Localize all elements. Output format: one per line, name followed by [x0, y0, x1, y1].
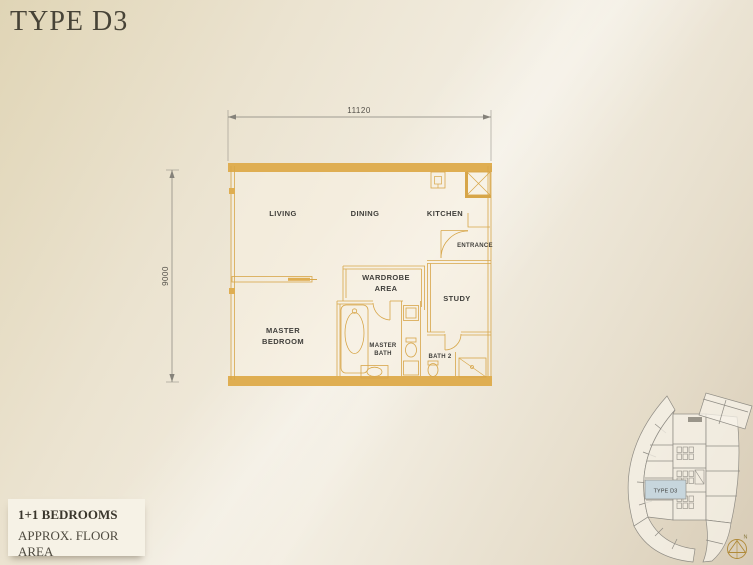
room-label-dining: DINING — [351, 209, 380, 218]
keyplan-bottom-right — [703, 520, 731, 562]
room-label-master-bedroom-2: BEDROOM — [262, 337, 304, 346]
compass-north-label: N — [744, 535, 748, 541]
room-label-bath2: BATH 2 — [428, 354, 451, 360]
compass-icon: N — [728, 535, 748, 559]
room-label-master-bath-1: MASTER — [369, 343, 396, 349]
dimension-height-label: 9000 — [161, 266, 170, 286]
room-label-entrance: ENTRANCE — [457, 243, 493, 249]
keyplan-right-units — [706, 414, 739, 523]
brochure-page: TYPE D3 11120 9000 — [0, 0, 753, 565]
floor-plan-graphic: 11120 9000 — [0, 0, 753, 565]
keyplan-unit-label: TYPE D3 — [654, 489, 678, 495]
room-label-study: STUDY — [443, 294, 470, 303]
info-card: 1+1 BEDROOMS APPROX. FLOOR AREA 1, 076 s… — [8, 499, 145, 556]
room-label-wardrobe-2: AREA — [375, 284, 398, 293]
floor-area-label: APPROX. FLOOR AREA — [18, 528, 145, 560]
room-label-wardrobe-1: WARDROBE — [362, 273, 410, 282]
keyplan-bottom-band — [634, 517, 695, 562]
dimension-width-label: 11120 — [347, 106, 371, 115]
room-label-living: LIVING — [269, 209, 296, 218]
room-label-master-bedroom-1: MASTER — [266, 326, 300, 335]
room-label-kitchen: KITCHEN — [427, 209, 463, 218]
keyplan-core — [673, 414, 706, 520]
floor-plan: 11120 9000 — [161, 106, 493, 386]
plan-interior-fill — [232, 170, 490, 378]
bedrooms-label: 1+1 BEDROOMS — [18, 507, 145, 523]
key-plan: TYPE D3 — [628, 393, 752, 562]
room-label-master-bath-2: BATH — [374, 351, 391, 357]
